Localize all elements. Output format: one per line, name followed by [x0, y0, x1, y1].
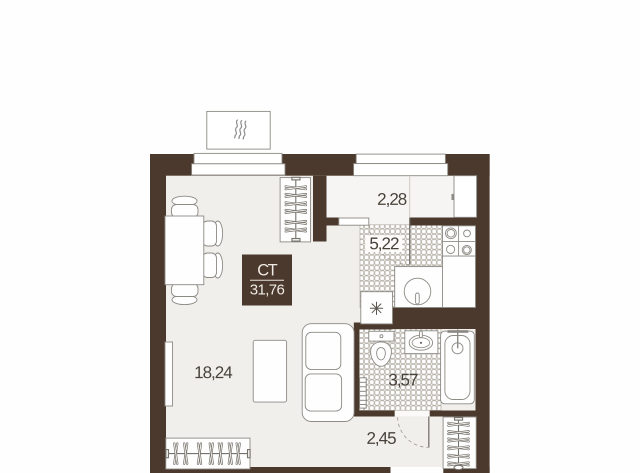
- svg-text:3,57: 3,57: [388, 371, 418, 390]
- svg-text:СТ: СТ: [257, 262, 277, 280]
- svg-text:2,45: 2,45: [366, 429, 396, 448]
- svg-text:2,28: 2,28: [377, 190, 407, 209]
- svg-text:18,24: 18,24: [194, 363, 232, 382]
- svg-text:5,22: 5,22: [369, 234, 399, 253]
- svg-text:31,76: 31,76: [250, 281, 285, 298]
